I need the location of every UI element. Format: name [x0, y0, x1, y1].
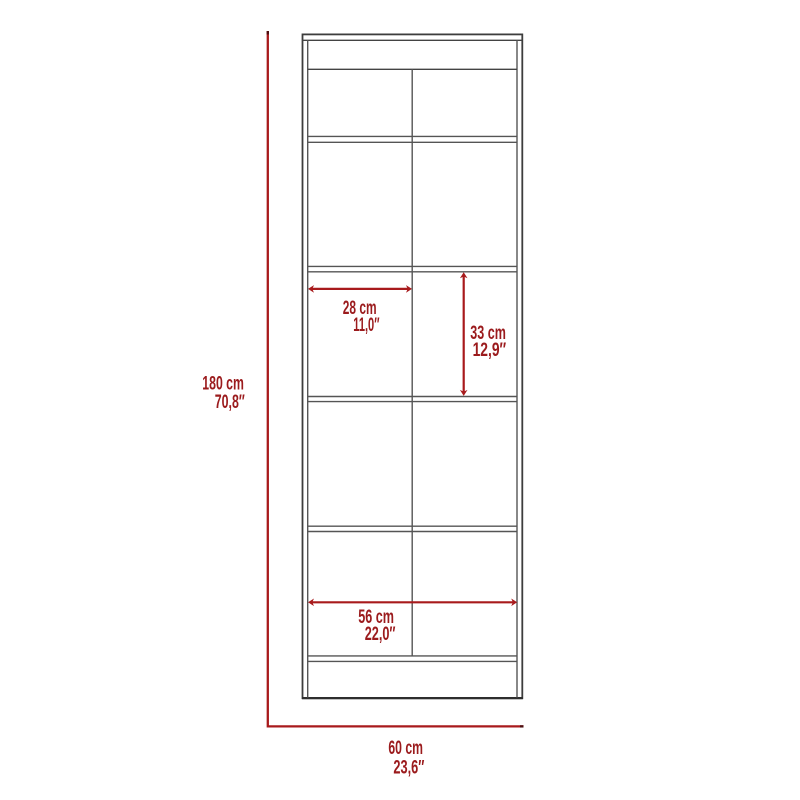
- svg-text:23,6″: 23,6″: [393, 757, 424, 779]
- svg-text:70,8″: 70,8″: [215, 391, 245, 413]
- svg-text:22,0″: 22,0″: [365, 623, 396, 645]
- svg-text:11,0″: 11,0″: [353, 314, 379, 336]
- svg-text:12,9″: 12,9″: [473, 339, 507, 361]
